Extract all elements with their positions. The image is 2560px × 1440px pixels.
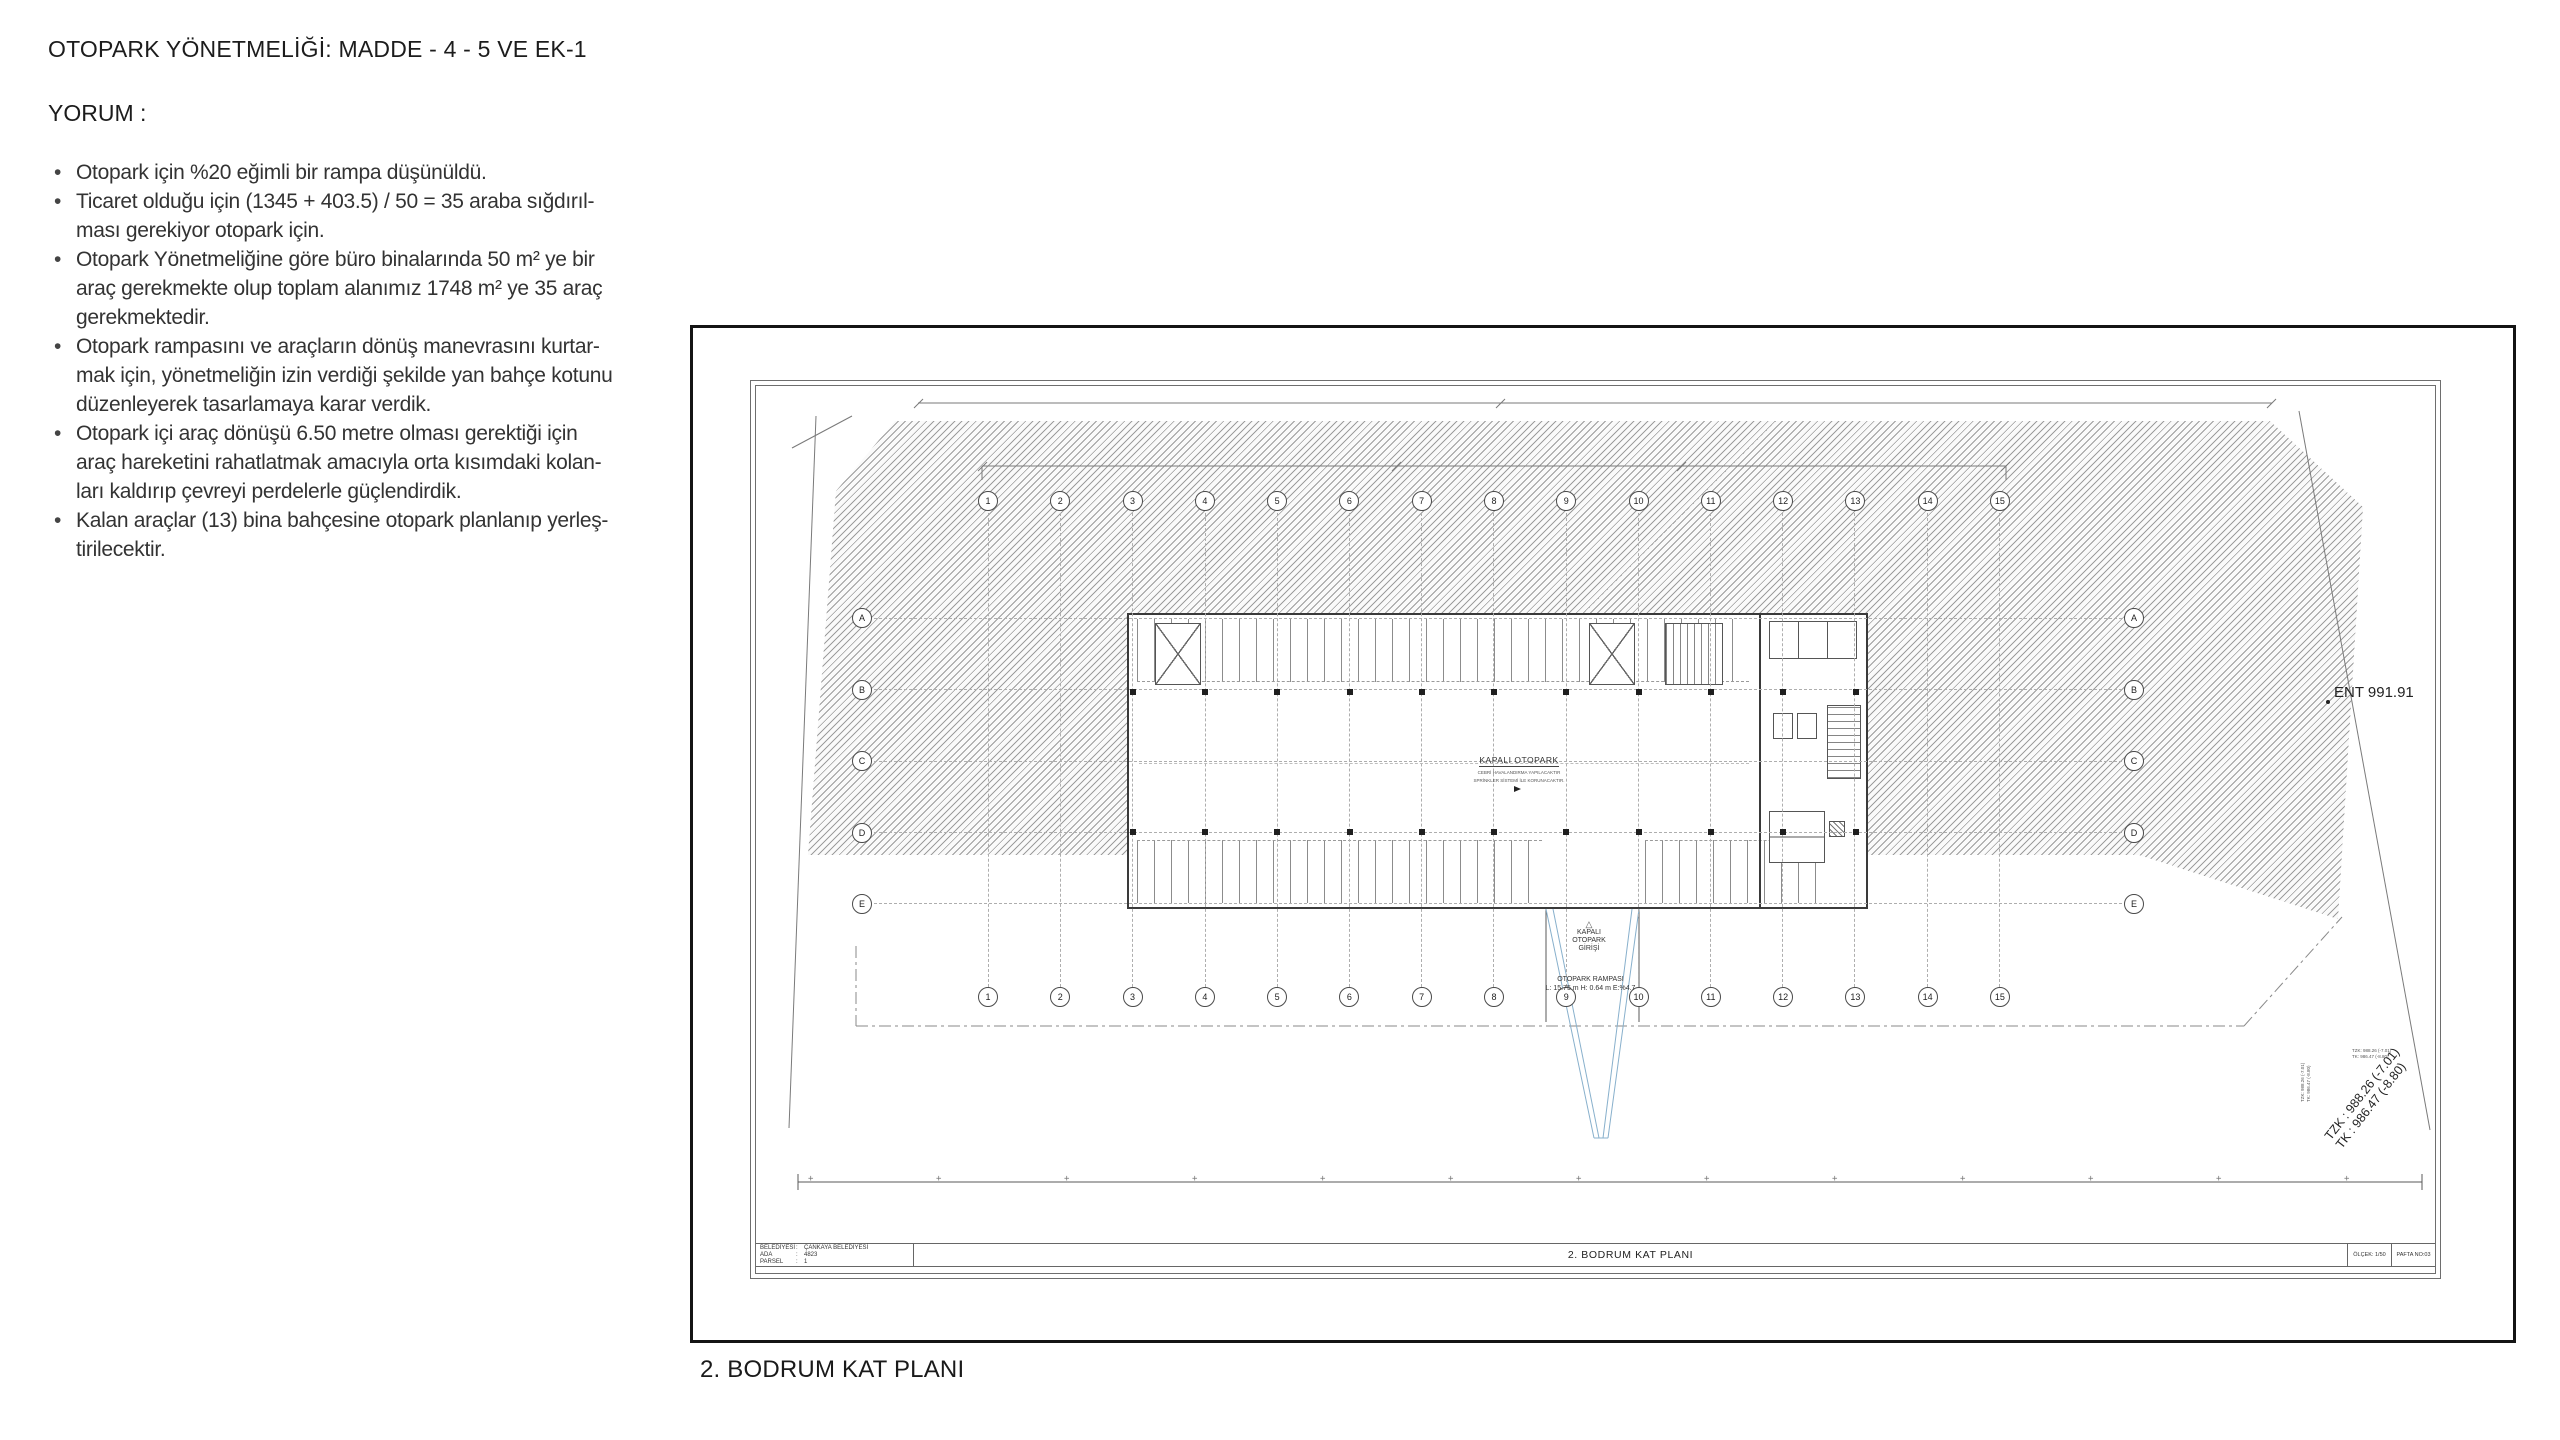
grid-column-bubble: 15: [1990, 491, 2010, 511]
leader-line: [792, 416, 852, 448]
grid-column-bubble: 7: [1412, 491, 1432, 511]
comment-line: tirilecektir.: [76, 535, 612, 564]
comment-heading: YORUM :: [48, 100, 146, 127]
survey-tick: +: [1576, 1175, 1581, 1184]
tk-small-label: TK: 986.47 (-8.80): [2306, 1063, 2312, 1102]
comment-line: düzenleyerek tasarlamaya karar verdik.: [76, 390, 612, 419]
grid-column-bubble: 6: [1339, 987, 1359, 1007]
entrance-label-line: OTOPARK: [1557, 937, 1621, 945]
grid-row-bubble: E: [2124, 894, 2144, 914]
grid-column-bubble: 5: [1267, 491, 1287, 511]
entrance-label-line: GİRİŞİ: [1557, 945, 1621, 953]
grid-column-bubble: 14: [1918, 491, 1938, 511]
grid-column-bubble: 14: [1918, 987, 1938, 1007]
grid-row-bubble: C: [852, 751, 872, 771]
comment-line: araç gerekmekte olup toplam alanımız 174…: [76, 274, 612, 303]
grid-column-bubble: 8: [1484, 987, 1504, 1007]
column-marker: [1202, 689, 1208, 695]
grid-column-bubble: 9: [1556, 491, 1576, 511]
entrance-triangle-icon: △: [1557, 920, 1621, 929]
column-marker: [1274, 689, 1280, 695]
survey-tick: +: [1064, 1175, 1069, 1184]
survey-tick: +: [1448, 1175, 1453, 1184]
comment-line: Kalan araçlar (13) bina bahçesine otopar…: [76, 506, 612, 535]
grid-column-bubble: 5: [1267, 987, 1287, 1007]
grid-line-horizontal: [874, 903, 2122, 904]
survey-tick: +: [2216, 1175, 2221, 1184]
survey-label-small: TZK: 988.26 (-7.01) TK: 986.47 (-8.80): [2352, 1048, 2391, 1059]
tzk-small-label: TZK: 988.26 (-7.01): [2352, 1048, 2391, 1054]
bullet-icon: •: [54, 187, 61, 216]
grid-row-bubble: B: [852, 680, 872, 700]
belediye-row: BELEDİYESİ:ÇANKAYA BELEDİYESİ: [760, 1245, 909, 1252]
column-marker: [1491, 829, 1497, 835]
survey-tick: +: [1832, 1175, 1837, 1184]
column-marker: [1130, 829, 1136, 835]
survey-tick: +: [936, 1175, 941, 1184]
bullet-icon: •: [54, 506, 61, 535]
comment-line: Ticaret olduğu için (1345 + 403.5) / 50 …: [76, 187, 612, 216]
column-marker: [1419, 689, 1425, 695]
survey-tick: +: [1320, 1175, 1325, 1184]
ramp-label-line: OTOPARK RAMPASI: [1518, 976, 1663, 985]
title-block-sheet-no: PAFTA NO:03: [2391, 1244, 2435, 1266]
grid-column-bubble: 2: [1050, 987, 1070, 1007]
grid-row-bubble: A: [852, 608, 872, 628]
parcel-boundary-right: [2299, 411, 2430, 1130]
grid-column-bubble: 13: [1845, 491, 1865, 511]
survey-tick: +: [1704, 1175, 1709, 1184]
comment-line: mak için, yönetmeliğin izin verdiği şeki…: [76, 361, 612, 390]
column-marker: [1780, 829, 1786, 835]
parsel-row: PARSEL:1: [760, 1259, 909, 1266]
comment-item: • Otopark rampasını ve araçların dönüş m…: [48, 332, 612, 419]
survey-label-vertical: TZK: 988.26 (-7.01) TK: 986.47 (-8.80): [2300, 1063, 2311, 1102]
grid-column-bubble: 7: [1412, 987, 1432, 1007]
grid-column-bubble: 6: [1339, 491, 1359, 511]
comment-item: • Otopark için %20 eğimli bir rampa düşü…: [48, 158, 612, 187]
survey-tick: +: [1192, 1175, 1197, 1184]
grid-line-horizontal: [874, 689, 2122, 690]
column-marker: [1347, 689, 1353, 695]
survey-tick: +: [808, 1175, 813, 1184]
grid-column-bubbles-top: 123456789101112131415: [978, 491, 2010, 511]
garage-entrance-label: △ KAPALI OTOPARK GİRİŞİ: [1557, 920, 1621, 953]
column-marker: [1130, 689, 1136, 695]
survey-tick: +: [2088, 1175, 2093, 1184]
grid-row-bubbles-right: ABCDE: [2124, 608, 2144, 914]
survey-point-dot: [2326, 700, 2330, 704]
grid-column-bubble: 4: [1195, 491, 1215, 511]
comment-line: ları kaldırıp çevreyi perdelerle güçlend…: [76, 477, 612, 506]
grid-row-bubble: E: [852, 894, 872, 914]
grid-column-bubble: 2: [1050, 491, 1070, 511]
tzk-small-label: TZK: 988.26 (-7.01): [2300, 1063, 2306, 1102]
grid-column-bubble: 11: [1701, 491, 1721, 511]
garage-label: KAPALI OTOPARK: [1479, 755, 1558, 767]
drawing-inner-frame: 123456789101112131415 123456789101112131…: [750, 380, 2441, 1279]
column-marker: [1419, 829, 1425, 835]
ada-row: ADA:4823: [760, 1252, 909, 1259]
page-title: OTOPARK YÖNETMELİĞİ: MADDE - 4 - 5 VE EK…: [48, 36, 587, 63]
column-marker: [1636, 829, 1642, 835]
grid-row-bubble: D: [2124, 823, 2144, 843]
grid-column-bubble: 1: [978, 987, 998, 1007]
column-marker: [1780, 689, 1786, 695]
grid-row-bubble: C: [2124, 751, 2144, 771]
column-marker: [1708, 689, 1714, 695]
title-block-info: BELEDİYESİ:ÇANKAYA BELEDİYESİ ADA:4823 P…: [756, 1244, 914, 1266]
parcel-boundary-left: [789, 416, 816, 1128]
grid-column-bubble: 10: [1629, 491, 1649, 511]
grid-row-bubble: A: [2124, 608, 2144, 628]
grid-column-bubble: 3: [1123, 491, 1143, 511]
grid-column-bubble: 11: [1701, 987, 1721, 1007]
grid-line-horizontal: [874, 832, 2122, 833]
drawing-border: 123456789101112131415 123456789101112131…: [755, 385, 2436, 1274]
column-marker: [1853, 829, 1859, 835]
comment-item: • Otopark Yönetmeliğine göre büro binala…: [48, 245, 612, 332]
garage-note: CEBRİ HAVALANDIRMA YAPILACAKTIR: [1439, 770, 1599, 776]
grid-row-bubbles-left: ABCDE: [852, 608, 872, 914]
ramp-label-line: L: 15.75 m H: 0.64 m E:%4.7: [1518, 985, 1663, 994]
entrance-label-line: KAPALI: [1557, 929, 1621, 937]
column-marker: [1708, 829, 1714, 835]
column-marker: [1853, 689, 1859, 695]
grid-column-bubble: 3: [1123, 987, 1143, 1007]
dimension-ticks-2: [978, 462, 2010, 480]
garage-label-group: KAPALI OTOPARK CEBRİ HAVALANDIRMA YAPILA…: [1439, 750, 1599, 792]
bullet-icon: •: [54, 332, 61, 361]
column-marker: [1491, 689, 1497, 695]
title-block-plan-title: 2. BODRUM KAT PLANI: [914, 1244, 2347, 1266]
grid-row-bubble: D: [852, 823, 872, 843]
survey-tick: +: [1960, 1175, 1965, 1184]
bullet-icon: •: [54, 245, 61, 274]
comment-line: Otopark Yönetmeliğine göre büro binaları…: [76, 245, 612, 274]
column-marker: [1274, 829, 1280, 835]
grid-column-bubble: 4: [1195, 987, 1215, 1007]
tk-small-label: TK: 986.47 (-8.80): [2352, 1054, 2391, 1060]
comment-line: Otopark için %20 eğimli bir rampa düşünü…: [76, 158, 612, 187]
column-marker: [1347, 829, 1353, 835]
grid-column-bubble: 8: [1484, 491, 1504, 511]
title-block-bar: BELEDİYESİ:ÇANKAYA BELEDİYESİ ADA:4823 P…: [756, 1243, 2435, 1267]
garage-note: SPRİNKLER SİSTEMİ İLE KORUNACAKTIR.: [1439, 778, 1599, 784]
column-marker: [1563, 689, 1569, 695]
comment-line: Otopark içi araç dönüşü 6.50 metre olmas…: [76, 419, 612, 448]
drawing-sheet-frame: 123456789101112131415 123456789101112131…: [690, 325, 2516, 1343]
grid-column-bubble: 12: [1773, 987, 1793, 1007]
floor-plan-drawing: 123456789101112131415 123456789101112131…: [756, 386, 2435, 1273]
comment-line: Otopark rampasını ve araçların dönüş man…: [76, 332, 612, 361]
survey-tick: +: [2344, 1175, 2349, 1184]
comment-item: • Otopark içi araç dönüşü 6.50 metre olm…: [48, 419, 612, 506]
column-marker: [1636, 689, 1642, 695]
grid-row-bubble: B: [2124, 680, 2144, 700]
bullet-icon: •: [54, 419, 61, 448]
comment-item: • Kalan araçlar (13) bina bahçesine otop…: [48, 506, 612, 564]
grid-column-bubble: 1: [978, 491, 998, 511]
comment-line: ması gerekiyor otopark için.: [76, 216, 612, 245]
grid-column-bubble: 12: [1773, 491, 1793, 511]
ramp-label: OTOPARK RAMPASI L: 15.75 m H: 0.64 m E:%…: [1518, 976, 1663, 993]
grid-column-bubbles-bottom: 123456789101112131415: [978, 987, 2010, 1007]
elevation-label: ENT 991.91: [2334, 684, 2414, 701]
bullet-icon: •: [54, 158, 61, 187]
grid-column-bubble: 15: [1990, 987, 2010, 1007]
grid-column-bubble: 13: [1845, 987, 1865, 1007]
title-block-scale: ÖLÇEK: 1/50: [2347, 1244, 2391, 1266]
level-arrow-icon: [1514, 786, 1524, 792]
drawing-caption: 2. BODRUM KAT PLANI: [700, 1356, 964, 1384]
comment-line: gerekmektedir.: [76, 303, 612, 332]
comment-line: araç hareketini rahatlatmak amacıyla ort…: [76, 448, 612, 477]
presentation-page: OTOPARK YÖNETMELİĞİ: MADDE - 4 - 5 VE EK…: [0, 0, 2560, 1440]
comment-item: • Ticaret olduğu için (1345 + 403.5) / 5…: [48, 187, 612, 245]
comment-list: • Otopark için %20 eğimli bir rampa düşü…: [48, 158, 612, 564]
grid-line-horizontal: [874, 618, 2122, 619]
column-marker: [1563, 829, 1569, 835]
column-marker: [1202, 829, 1208, 835]
